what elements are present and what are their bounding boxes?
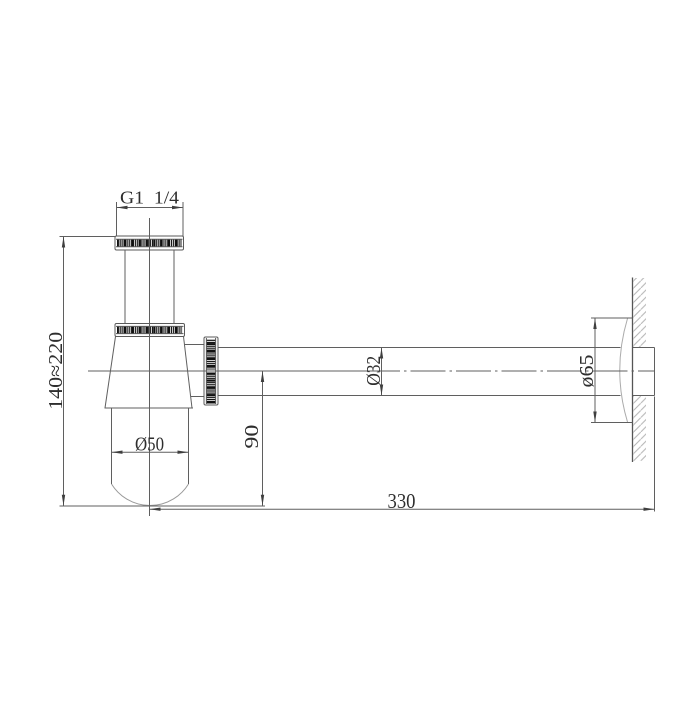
svg-text:Ø50: Ø50: [135, 434, 164, 456]
svg-text:330: 330: [388, 489, 416, 513]
svg-text:Ø32: Ø32: [363, 356, 385, 386]
svg-text:ø65: ø65: [576, 355, 598, 388]
svg-text:140≈220: 140≈220: [45, 332, 67, 410]
svg-text:90: 90: [241, 425, 263, 449]
svg-text:G1 1/4: G1 1/4: [120, 188, 179, 208]
